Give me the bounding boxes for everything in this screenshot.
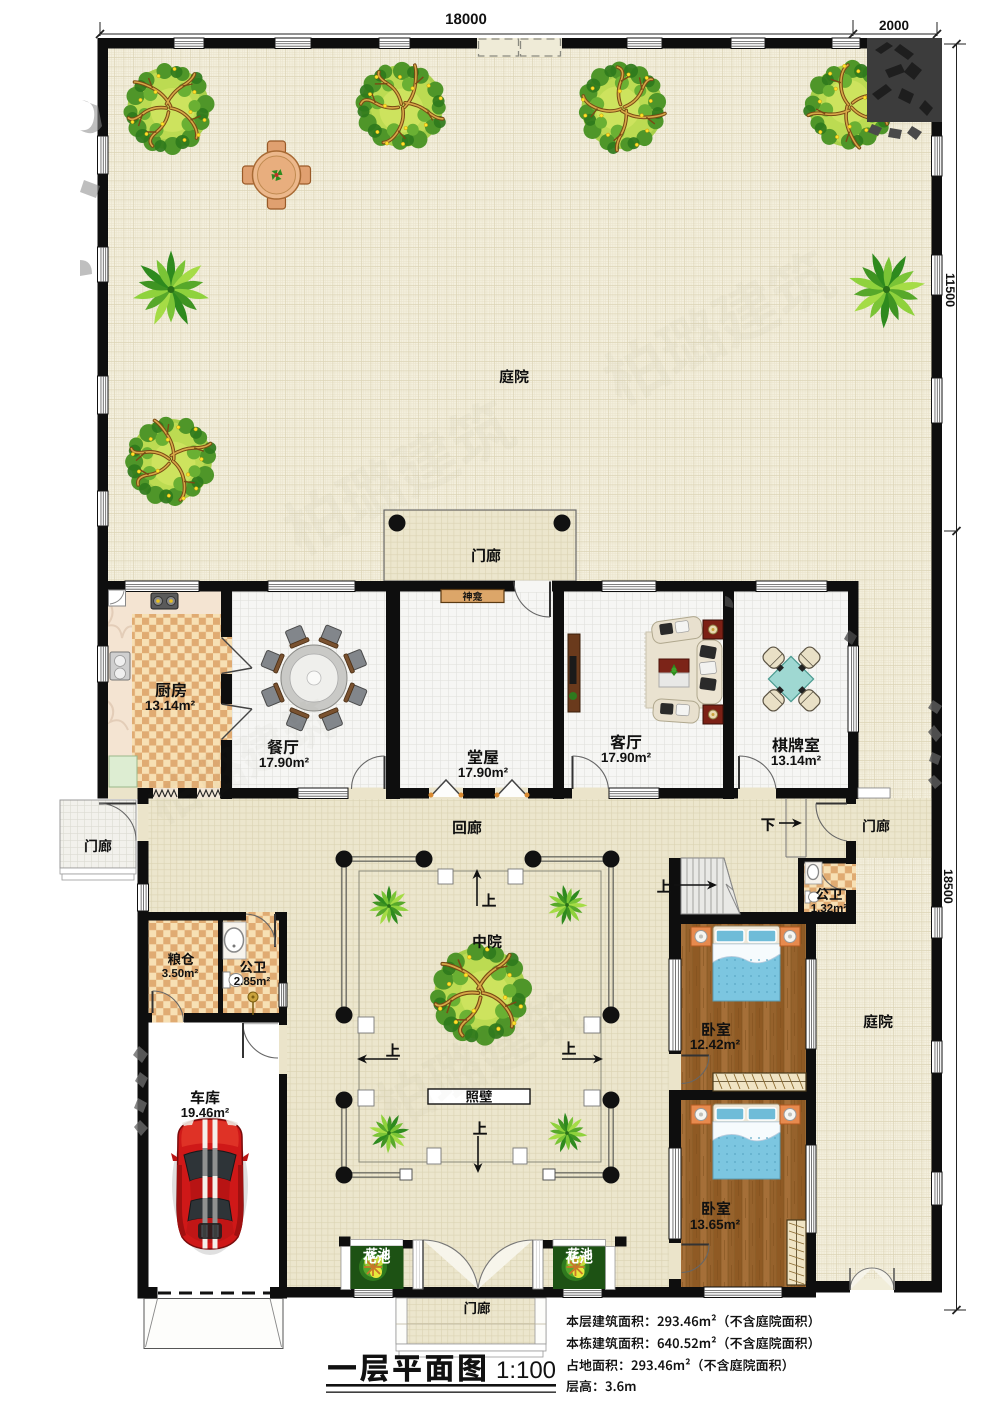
svg-text:2.85m²: 2.85m² — [234, 976, 271, 988]
svg-text:17.90m²: 17.90m² — [458, 765, 509, 780]
svg-text:12.42m²: 12.42m² — [690, 1037, 741, 1052]
svg-text:13.14m²: 13.14m² — [145, 698, 196, 713]
svg-text:1.32m²: 1.32m² — [811, 903, 848, 915]
svg-text:18500: 18500 — [941, 869, 955, 904]
svg-text:3.50m²: 3.50m² — [162, 968, 199, 980]
svg-text:18000: 18000 — [445, 11, 487, 28]
svg-text:13.14m²: 13.14m² — [771, 753, 822, 768]
svg-text:19.46m²: 19.46m² — [181, 1105, 230, 1120]
svg-text:1:100: 1:100 — [496, 1357, 556, 1384]
svg-text:17.90m²: 17.90m² — [601, 750, 652, 765]
svg-text:11500: 11500 — [943, 273, 957, 307]
svg-text:2000: 2000 — [879, 18, 909, 33]
svg-text:13.65m²: 13.65m² — [690, 1217, 741, 1232]
